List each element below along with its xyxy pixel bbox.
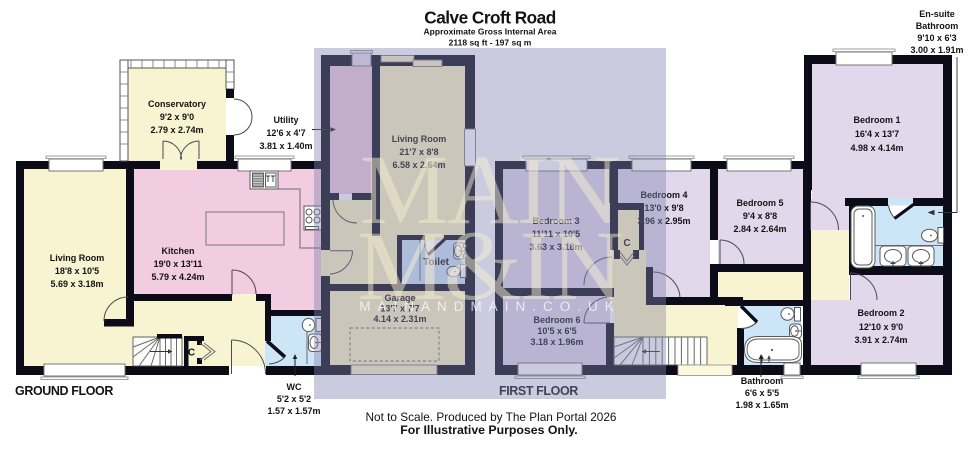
svg-text:Bathroom: Bathroom [741,376,784,386]
svg-text:19'0 x 13'11: 19'0 x 13'11 [154,259,203,269]
svg-text:4.98 x 4.14m: 4.98 x 4.14m [850,143,903,153]
svg-text:5.79 x 4.24m: 5.79 x 4.24m [151,272,204,282]
svg-text:Bathroom: Bathroom [916,21,959,31]
svg-text:Approximate Gross Internal Are: Approximate Gross Internal Area [424,27,557,37]
svg-text:3.00 x 1.91m: 3.00 x 1.91m [910,45,963,55]
svg-text:12'6 x 4'7: 12'6 x 4'7 [266,128,305,138]
svg-text:5.69 x 3.18m: 5.69 x 3.18m [50,279,103,289]
svg-text:2.84 x 2.64m: 2.84 x 2.64m [733,224,786,234]
svg-text:For Illustrative Purposes Only: For Illustrative Purposes Only. [400,423,577,437]
svg-text:Utility: Utility [273,115,298,125]
svg-text:6'6 x 5'5: 6'6 x 5'5 [745,388,779,398]
svg-text:Kitchen: Kitchen [161,246,194,256]
svg-text:Bedroom 1: Bedroom 1 [853,115,900,125]
svg-text:C: C [188,348,195,359]
svg-text:5'2 x 5'2: 5'2 x 5'2 [277,394,311,404]
svg-text:3.81 x 1.40m: 3.81 x 1.40m [259,141,312,151]
svg-text:GROUND FLOOR: GROUND FLOOR [15,384,113,398]
svg-text:Bedroom 5: Bedroom 5 [736,198,783,208]
svg-text:Calve Croft Road: Calve Croft Road [424,8,555,28]
svg-text:9'10 x 6'3: 9'10 x 6'3 [917,33,956,43]
svg-text:Living Room: Living Room [50,253,105,263]
svg-text:9'4 x 8'8: 9'4 x 8'8 [743,211,777,221]
svg-text:16'4 x 13'7: 16'4 x 13'7 [855,129,899,139]
svg-text:3.91 x 2.74m: 3.91 x 2.74m [854,335,907,345]
svg-text:2.79 x 2.74m: 2.79 x 2.74m [150,125,203,135]
svg-text:En-suite: En-suite [919,9,955,19]
svg-text:1.98 x 1.65m: 1.98 x 1.65m [735,400,788,410]
svg-text:MAINANDMAIN.CO.UK: MAINANDMAIN.CO.UK [359,299,621,314]
svg-text:2118 sq ft - 197 sq m: 2118 sq ft - 197 sq m [449,38,532,48]
svg-text:Bedroom 2: Bedroom 2 [857,308,904,318]
svg-text:WC: WC [287,382,302,392]
svg-text:Conservatory: Conservatory [148,99,206,109]
svg-text:12'10 x 9'0: 12'10 x 9'0 [859,322,903,332]
svg-text:Not to Scale. Produced by The: Not to Scale. Produced by The Plan Porta… [366,410,617,424]
svg-text:18'8 x 10'5: 18'8 x 10'5 [55,266,99,276]
svg-text:9'2 x 9'0: 9'2 x 9'0 [160,112,194,122]
svg-text:1.57 x 1.57m: 1.57 x 1.57m [267,406,320,416]
